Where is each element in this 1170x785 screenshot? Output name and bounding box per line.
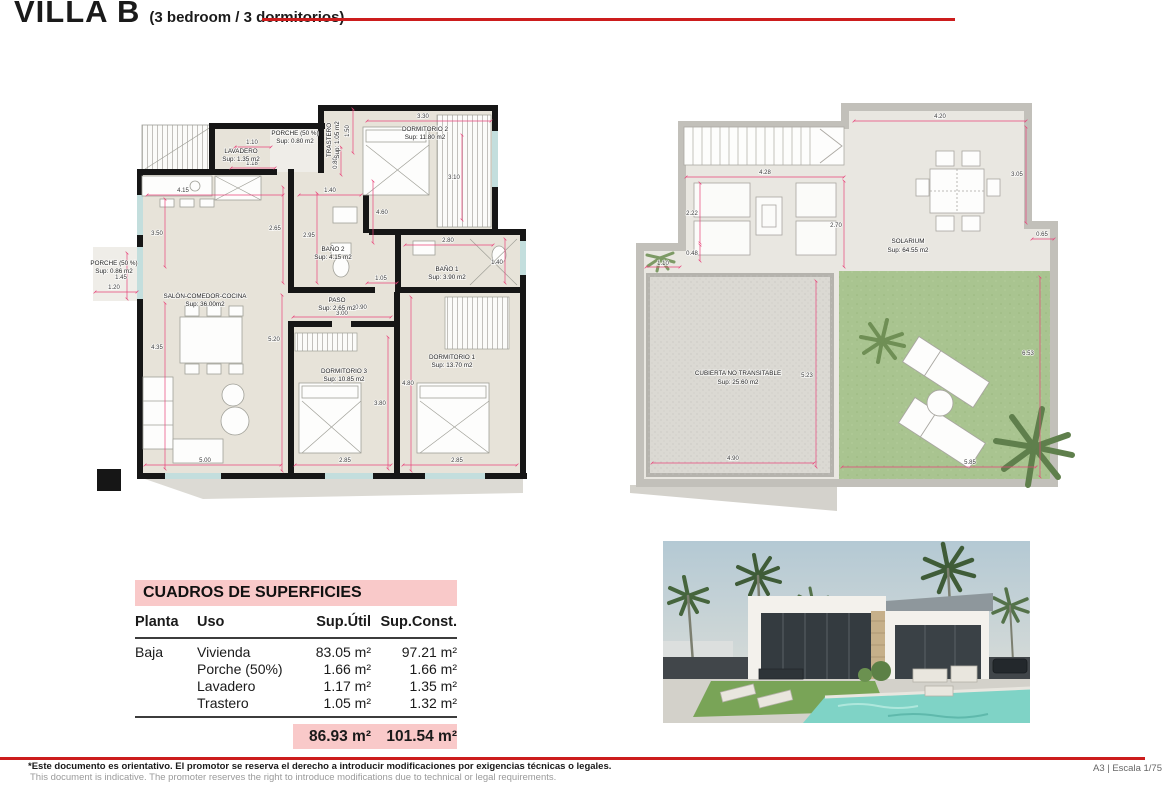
dim-label: 5.20 xyxy=(268,337,280,343)
dim-label: 1.40 xyxy=(324,188,336,194)
dim-label: 4.90 xyxy=(727,456,739,462)
dim-label: 0.48 xyxy=(686,251,698,257)
dim-label: 0.90 xyxy=(355,305,367,311)
dim-label: 1.50 xyxy=(345,125,351,137)
dim-label: 1.10 xyxy=(657,261,669,267)
table-cell: Vivienda xyxy=(197,644,293,661)
table-cell: 1.66 m² xyxy=(293,661,371,678)
col-header-sup-util: Sup.Útil xyxy=(293,614,371,637)
dim-label: 2.95 xyxy=(303,233,315,239)
dim-label: 3.80 xyxy=(374,401,386,407)
room-label-bano2: BAÑO 2 xyxy=(321,244,345,253)
ground-floor-plan: 1.10 1.18 1.50 0.80 3.30 3.10 4.60 4.15 … xyxy=(85,95,555,515)
page-title: VILLA B (3 bedroom / 3 dormitorios) xyxy=(14,0,344,30)
col-header-planta: Planta xyxy=(135,614,197,637)
dim-label: 1.20 xyxy=(108,285,120,291)
dim-label: 1.45 xyxy=(115,275,127,281)
dim-label: 2.65 xyxy=(269,226,281,232)
table-cell: 1.17 m² xyxy=(293,678,371,695)
roof-slab xyxy=(630,107,1054,511)
table-cell xyxy=(135,678,197,695)
room-label-porche-left: PORCHE (50 %) xyxy=(90,260,137,267)
dim-label: 2.80 xyxy=(442,238,454,244)
table-cell xyxy=(135,661,197,678)
title-rule xyxy=(262,18,955,21)
room-label-salon: SALÓN-COMEDOR-COCINA xyxy=(164,291,248,300)
svg-text:Sup: 64.55 m2: Sup: 64.55 m2 xyxy=(888,247,929,254)
villa-title: VILLA B xyxy=(14,0,140,30)
totals-row: 86.93 m² 101.54 m² xyxy=(135,724,457,749)
header-rule xyxy=(135,637,457,639)
svg-text:Sup: 11.80 m2: Sup: 11.80 m2 xyxy=(405,134,446,141)
roof-stairs xyxy=(684,127,844,165)
dim-label: 1.05 xyxy=(375,276,387,282)
svg-text:Sup: 3.90 m2: Sup: 3.90 m2 xyxy=(428,274,466,281)
exterior-stairs xyxy=(142,125,214,171)
total-sup-const: 101.54 m² xyxy=(371,728,457,745)
plan-sheet: VILLA B (3 bedroom / 3 dormitorios) xyxy=(0,0,1170,785)
surfaces-title: CUADROS DE SUPERFICIES xyxy=(135,580,457,606)
svg-text:TRASTERO: TRASTERO xyxy=(326,123,333,157)
dim-label: 1.10 xyxy=(246,140,258,146)
room-label-bano1: BAÑO 1 xyxy=(435,264,459,273)
total-rule xyxy=(135,716,457,718)
table-cell: Trastero xyxy=(197,695,293,712)
room-label-trastero: TRASTERO Sup: 1.05 m2 xyxy=(326,121,341,159)
dim-label: 3.05 xyxy=(1011,172,1023,178)
roof-solarium-plan: 4.20 3.05 4.28 2.22 0.48 1.10 2.70 0.65 … xyxy=(630,95,1080,515)
col-header-uso: Uso xyxy=(197,614,293,637)
total-sup-util: 86.93 m² xyxy=(293,728,371,745)
dim-label: 5.00 xyxy=(199,458,211,464)
table-cell: 83.05 m² xyxy=(293,644,371,661)
svg-text:Sup: 10.85 m2: Sup: 10.85 m2 xyxy=(324,376,365,383)
svg-text:Sup: 36.00m2: Sup: 36.00m2 xyxy=(185,301,225,308)
dim-label: 4.60 xyxy=(376,210,388,216)
sheet-scale: A3 | Escala 1/75 xyxy=(1020,763,1168,774)
room-label-dormitorio3: DORMITORIO 3 xyxy=(321,368,368,375)
svg-text:Sup: 0.86 m2: Sup: 0.86 m2 xyxy=(95,268,133,275)
table-cell: 1.05 m² xyxy=(293,695,371,712)
svg-text:Sup: 4.15 m2: Sup: 4.15 m2 xyxy=(314,254,352,261)
room-label-paso: PASO xyxy=(328,297,345,304)
svg-text:Sup: 13.70 m2: Sup: 13.70 m2 xyxy=(432,362,473,369)
svg-text:Sup: 1.35 m2: Sup: 1.35 m2 xyxy=(222,156,260,163)
table-cell: 97.21 m² xyxy=(371,644,457,661)
dim-label: 3.50 xyxy=(151,231,163,237)
table-cell xyxy=(135,695,197,712)
dim-label: 2.70 xyxy=(830,223,842,229)
room-label-dormitorio1: DORMITORIO 1 xyxy=(429,354,476,361)
dim-label: 3.10 xyxy=(448,175,460,181)
svg-text:Sup: 25.60 m2: Sup: 25.60 m2 xyxy=(718,379,759,386)
dim-label: 3.30 xyxy=(417,114,429,120)
table-cell: Baja xyxy=(135,644,197,661)
table-cell: 1.66 m² xyxy=(371,661,457,678)
dim-label: 5.23 xyxy=(801,373,813,379)
col-header-sup-const: Sup.Const. xyxy=(371,614,457,637)
dim-label: 4.80 xyxy=(402,381,414,387)
dim-label: 1.40 xyxy=(491,260,503,266)
svg-text:Sup: 0.80 m2: Sup: 0.80 m2 xyxy=(276,138,314,145)
footer-rule xyxy=(0,757,1145,760)
dim-label: 0.65 xyxy=(1036,232,1048,238)
disclaimer-es: *Este documento es orientativo. El promo… xyxy=(28,761,611,772)
disclaimer-en: This document is indicative. The promote… xyxy=(30,772,556,783)
table-cell: Porche (50%) xyxy=(197,661,293,678)
room-label-lavadero: LAVADERO xyxy=(224,148,257,155)
dim-label: 2.22 xyxy=(686,211,698,217)
dim-label: 5.85 xyxy=(964,460,976,466)
dim-label: 4.35 xyxy=(151,345,163,351)
svg-text:Sup: 2.65 m2: Sup: 2.65 m2 xyxy=(318,305,356,312)
svg-text:Sup: 1.05 m2: Sup: 1.05 m2 xyxy=(334,121,341,159)
room-label-solarium: SOLARIUM xyxy=(892,238,925,245)
table-cell: Lavadero xyxy=(197,678,293,695)
dim-label: 4.28 xyxy=(759,170,771,176)
room-label-cubierta: CUBIERTA NO TRANSITABLE xyxy=(695,370,781,377)
surfaces-table: CUADROS DE SUPERFICIES Planta Uso Sup.Út… xyxy=(135,580,457,749)
dim-label: 2.85 xyxy=(451,458,463,464)
dim-label: 6.53 xyxy=(1022,351,1034,357)
table-cell: 1.35 m² xyxy=(371,678,457,695)
dim-label: 4.15 xyxy=(177,188,189,194)
dim-label: 2.85 xyxy=(339,458,351,464)
table-cell: 1.32 m² xyxy=(371,695,457,712)
room-label-porche-top: PORCHE (50 %) xyxy=(271,130,318,137)
villa-render-image xyxy=(663,541,1030,723)
room-label-dormitorio2: DORMITORIO 2 xyxy=(402,126,449,133)
dim-label: 4.20 xyxy=(934,114,946,120)
